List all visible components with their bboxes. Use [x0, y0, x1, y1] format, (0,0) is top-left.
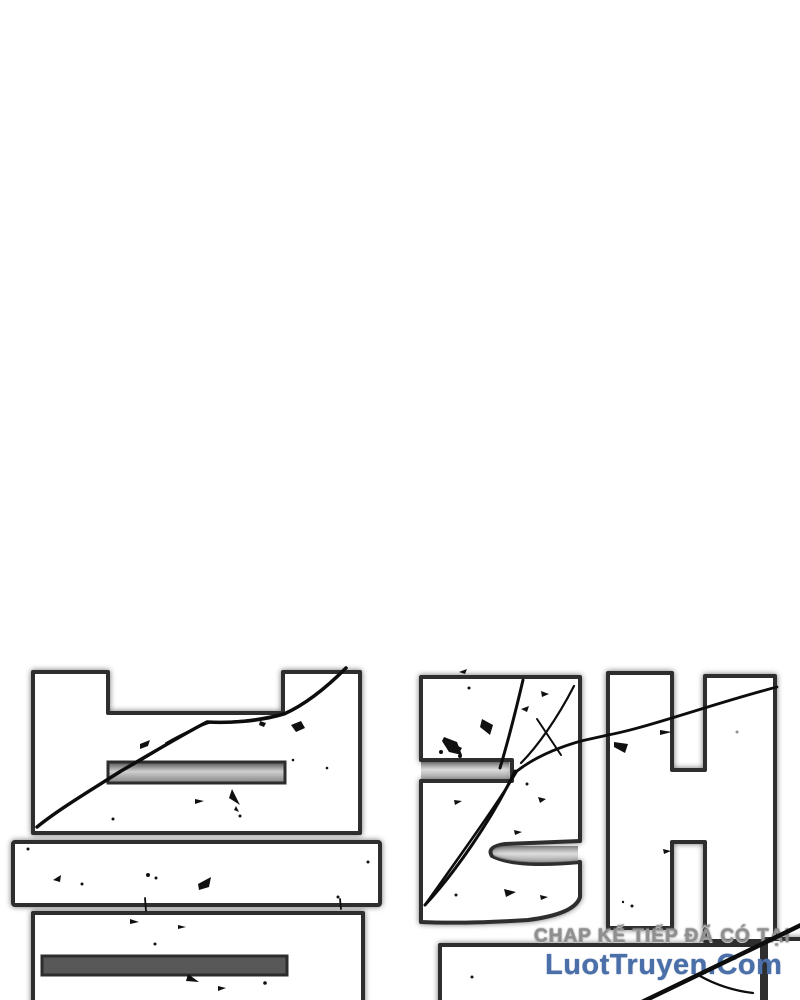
glyph-letter-1 — [13, 672, 380, 1000]
title-artwork — [0, 0, 800, 1000]
watermark-availability-text: CHAP KẾ TIẾP ĐÃ CÓ TẠI — [534, 926, 791, 948]
webtoon-page[interactable]: CHAP KẾ TIẾP ĐÃ CÓ TẠI LuotTruyen.Com — [0, 0, 800, 1000]
watermark-site-name: LuotTruyen.Com — [545, 949, 782, 982]
